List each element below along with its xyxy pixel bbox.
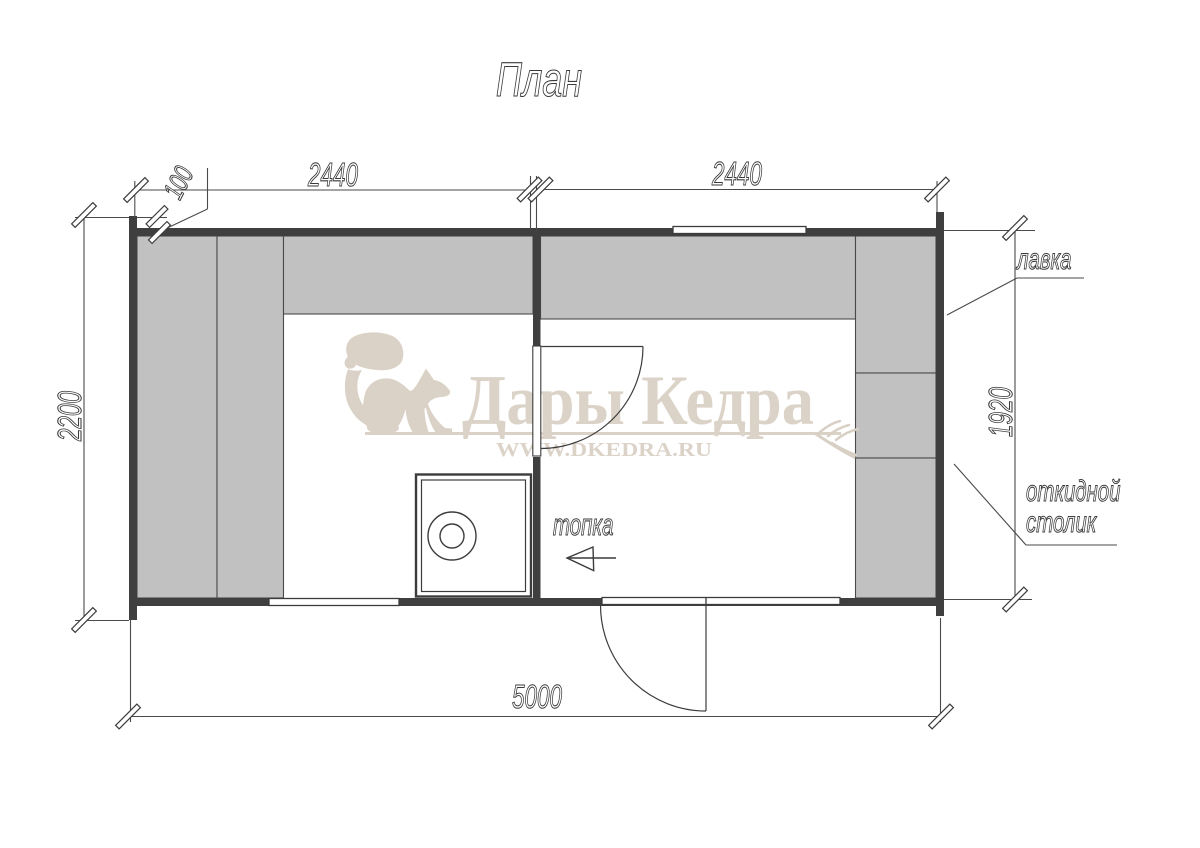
svg-text:1920: 1920 [982,387,1019,437]
svg-text:лавка: лавка [1015,243,1071,276]
svg-text:2200: 2200 [51,391,88,442]
svg-text:2440: 2440 [307,156,358,193]
svg-text:откидной: откидной [1026,475,1120,508]
svg-text:2440: 2440 [711,155,762,192]
svg-text:столик: столик [1026,506,1097,539]
svg-text:топка: топка [553,507,613,542]
svg-text:Дары Кедра: Дары Кедра [462,362,814,440]
svg-text:WWW.DKEDRA.RU: WWW.DKEDRA.RU [496,439,712,461]
svg-text:5000: 5000 [512,678,562,715]
svg-text:План: План [496,53,582,106]
